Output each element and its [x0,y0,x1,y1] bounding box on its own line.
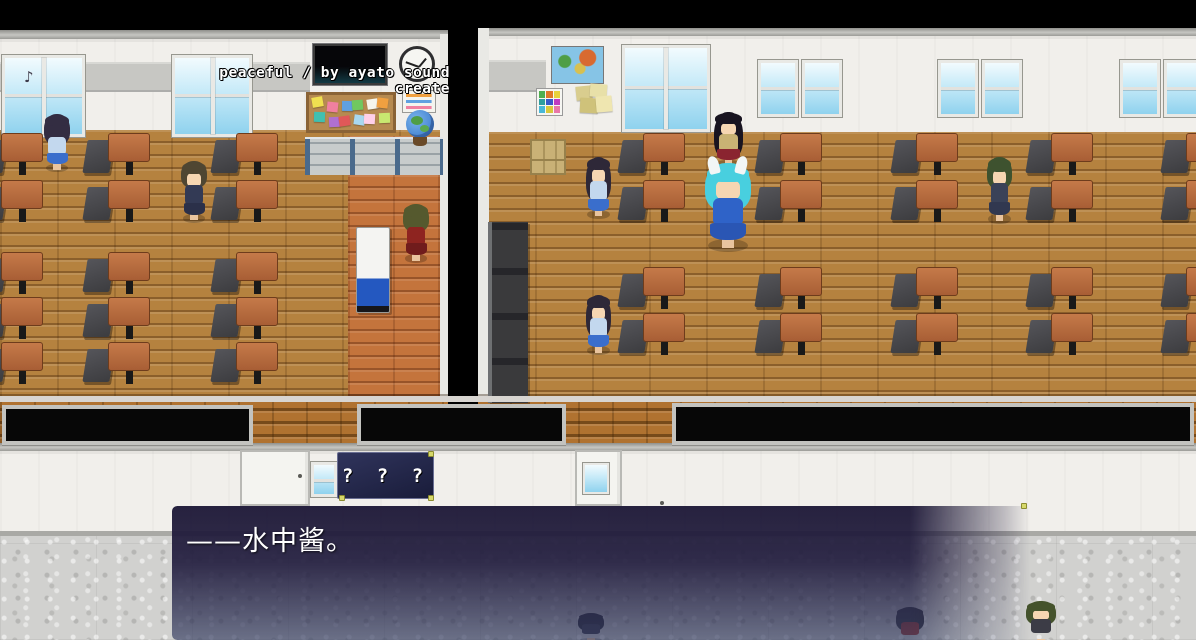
character-skirt [406,243,427,255]
character-hair-fringe [404,205,429,217]
desk-top [1,133,43,162]
student-desk [1163,313,1196,357]
desk-leg [1069,162,1076,175]
student-desk [213,133,279,177]
student-desk [213,180,279,224]
schoolgirl-right-room-1[interactable] [584,155,613,219]
student-desk [893,133,959,177]
desk-leg [661,162,668,175]
student-desk [0,252,44,296]
bulletin-note [338,115,350,126]
desk-leg [19,209,26,222]
desk-top [108,342,150,371]
student-desk [1163,267,1196,311]
student-desk [85,297,151,341]
student-desk [85,180,151,224]
character-hair-fringe [45,115,70,126]
globe-stand [413,137,427,146]
student-desk [1163,133,1196,177]
grid-cell [546,106,552,113]
character-skirt [717,149,740,160]
desk-top [1186,313,1196,342]
character-skirt [184,203,205,215]
bulletin-note [327,101,339,112]
desk-top [108,133,150,162]
classroom_right-window [1120,60,1160,117]
desk-top [780,180,822,209]
desk-top [236,342,278,371]
desk-leg [798,162,805,175]
classroom_right-window [758,60,798,117]
desk-leg [126,326,133,339]
grid-cell [554,106,560,113]
plaque-pin [339,495,345,501]
desk-top [643,133,685,162]
window-sash [761,87,795,90]
window-divider [664,48,668,129]
globe-land2 [420,125,429,132]
wall-cabinet [530,139,566,175]
desk-top [780,133,822,162]
student-desk [0,133,44,177]
desk-top [916,180,958,209]
student-desk [620,133,686,177]
desk-leg [19,371,26,384]
world-map-poster [552,47,603,83]
sticky-note [595,95,612,112]
classroom-nameplate-text: ? ? ? [342,465,429,487]
right-room-wall-trim [478,28,1196,36]
schoolgirl-right-room-2[interactable] [584,293,613,355]
bulletin-note [376,97,388,108]
student-desk [893,180,959,224]
desk-top [1,297,43,326]
rooms-gap-void [448,0,478,406]
student-desk [1163,180,1196,224]
character-hair-fringe [587,158,611,170]
dialogue-window[interactable]: ——水中酱。 [172,506,1030,640]
desk-top [1186,180,1196,209]
desk-top [1051,180,1093,209]
student-desk [0,342,44,386]
character-face [716,180,740,199]
character-skirt [710,223,746,240]
desk-top [780,313,822,342]
grid-cell [539,91,545,98]
grid-cell [546,99,552,106]
character-skirt [588,199,608,211]
desk-top [1051,313,1093,342]
classroom_right-window [1164,60,1196,117]
student-desk [213,342,279,386]
desk-leg [126,162,133,175]
bulletin-note [379,113,390,123]
desk-top [236,180,278,209]
desk-top [108,297,150,326]
desk-leg [19,281,26,294]
student-desk [1028,267,1094,311]
desk-leg [661,209,668,222]
bulletin-note [364,114,376,125]
character-hair-fringe [182,162,207,174]
desk-top [916,313,958,342]
student-desk [85,342,151,386]
classroom_right-window [982,60,1022,117]
grid-cell [539,106,545,113]
desk-top [1186,267,1196,296]
lockers [488,222,528,403]
dialogue-text: ——水中酱。 [186,519,354,558]
bulletin-note [352,100,364,111]
character-hair-fringe [1027,602,1055,611]
student-desk [1028,133,1094,177]
game-viewport: ♪ ? ? ? peaceful / by ayato sound create… [0,0,1196,640]
student-desk [757,313,823,357]
desk-top [643,180,685,209]
student-desk [0,180,44,224]
color-grid-poster [536,88,563,116]
door-window [583,463,609,493]
desk-leg [661,296,668,309]
desk-leg [661,342,668,355]
desk-top [236,133,278,162]
student-desk [620,267,686,311]
vending-machine[interactable] [356,227,390,313]
bgm-credit-text: peaceful / by ayato sound create [158,65,450,97]
desk-top [643,267,685,296]
window-sash [985,87,1019,90]
student-desk [1028,180,1094,224]
wall-screw [660,501,664,505]
globe-land [411,116,423,125]
desk-top [236,252,278,281]
schoolgirl-left-room[interactable] [42,112,72,172]
desk-leg [798,342,805,355]
window-sash [1167,87,1196,90]
student-desk [213,297,279,341]
student-desk [620,313,686,357]
desk-leg [798,209,805,222]
character-hair-fringe [587,296,611,308]
grid-cell [554,91,560,98]
student-desk [620,180,686,224]
desk-top [1186,133,1196,162]
desk-top [236,297,278,326]
grid-cell [539,99,545,106]
door-knob [298,474,302,478]
desk-top [108,252,150,281]
aqua-haired-girl[interactable] [702,160,754,252]
teacher-red-tracksuit[interactable] [401,202,431,263]
hall-upper-trim [0,396,1196,402]
hallway-window [311,462,337,497]
window-sash [805,87,839,90]
desk-leg [1069,342,1076,355]
grid-cell [546,91,552,98]
desk-top [108,180,150,209]
character-skirt [588,335,608,347]
classroom_right-window [622,45,710,132]
student-desk [893,313,959,357]
sticky-notes-cluster [576,84,614,118]
character-body [713,198,743,227]
globe [403,110,437,148]
window-sash [1123,87,1157,90]
character-skirt [47,153,68,164]
desk-leg [126,371,133,384]
hallway-door[interactable] [575,450,622,506]
desk-top [780,267,822,296]
desk-leg [19,162,26,175]
student-desk [0,297,44,341]
hall-notice-panel [357,404,566,445]
classroom_right-window [938,60,978,117]
desk-leg [126,281,133,294]
student-desk [757,267,823,311]
character-hair-fringe [988,158,1012,171]
desk-top [1051,267,1093,296]
student-desk [1028,313,1094,357]
window-sash [314,479,334,482]
desk-leg [1069,296,1076,309]
desk-leg [798,296,805,309]
hall-notice-panel [2,405,253,445]
desk-leg [934,162,941,175]
window-sash [941,87,975,90]
student-desk [757,180,823,224]
desk-top [916,133,958,162]
desk-top [1,342,43,371]
hall-notice-panel [672,403,1194,445]
student-desk [213,252,279,296]
student-desk [757,133,823,177]
desk-top [643,313,685,342]
wall-pin [1021,503,1027,509]
character-body [1031,619,1051,633]
left-room-wall-trim [0,30,448,39]
hallway-door[interactable] [240,450,310,506]
desk-top [1,252,43,281]
student-desk [85,133,151,177]
classroom-nameplate[interactable]: ? ? ? [337,452,434,499]
character-skirt [989,202,1009,215]
grid-cell [554,99,560,106]
desk-leg [254,281,261,294]
desk-leg [126,209,133,222]
student-desk [85,252,151,296]
desk-leg [254,371,261,384]
desk-top [1,180,43,209]
desk-leg [934,296,941,309]
desk-leg [934,209,941,222]
bulletin-note [314,112,325,122]
classroom_right-window [802,60,842,117]
map-top-void [0,0,1196,30]
desk-leg [254,326,261,339]
desk-leg [934,342,941,355]
green-haired-student[interactable] [985,155,1014,224]
desk-leg [254,209,261,222]
desk-leg [1069,209,1076,222]
desk-top [1051,133,1093,162]
desk-top [916,267,958,296]
student-desk [893,267,959,311]
character-hair-fringe [715,113,742,124]
plaque-pin [428,495,434,501]
desk-leg [19,326,26,339]
plaque-pin [428,451,434,457]
desk-leg [254,162,261,175]
music-note-icon: ♪ [24,68,34,86]
teacher-suit[interactable] [179,159,209,223]
bulletin-board [306,92,396,133]
bulletin-note [311,96,324,108]
